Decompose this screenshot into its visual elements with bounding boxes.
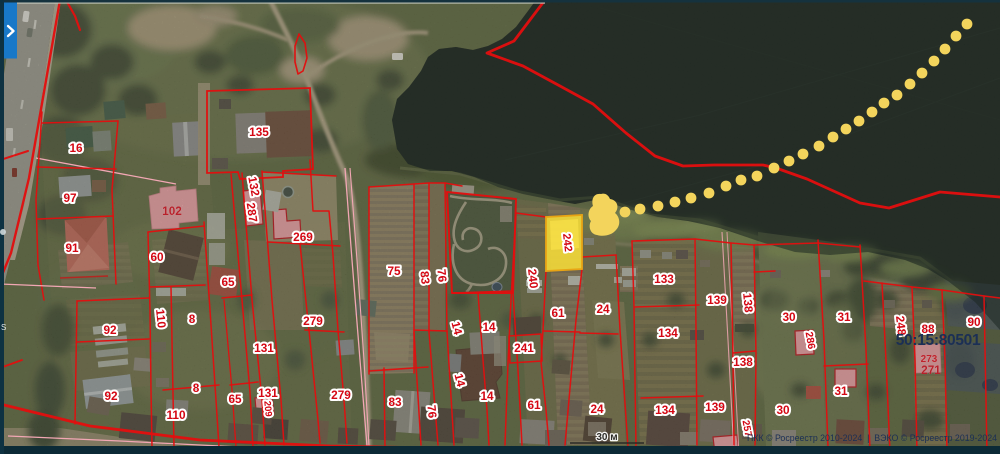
svg-text:76: 76 [424, 404, 439, 419]
svg-text:8: 8 [193, 381, 200, 395]
svg-text:279: 279 [303, 314, 323, 328]
svg-text:91: 91 [65, 241, 79, 255]
svg-text:131: 131 [254, 341, 274, 355]
svg-text:92: 92 [104, 389, 118, 403]
svg-text:60: 60 [150, 250, 164, 264]
svg-text:50:15:80501: 50:15:80501 [896, 332, 981, 349]
svg-text:139: 139 [707, 293, 727, 307]
svg-text:61: 61 [527, 398, 541, 412]
svg-text:271: 271 [921, 363, 941, 377]
svg-text:83: 83 [388, 395, 402, 409]
svg-text:24: 24 [596, 302, 610, 316]
svg-text:269: 269 [293, 230, 313, 244]
svg-text:65: 65 [221, 275, 235, 289]
svg-text:75: 75 [387, 264, 401, 278]
svg-text:279: 279 [331, 388, 351, 402]
svg-text:138: 138 [740, 292, 756, 313]
svg-text:90: 90 [967, 315, 981, 329]
svg-text:31: 31 [837, 310, 851, 324]
svg-text:209: 209 [261, 400, 273, 417]
svg-text:241: 241 [514, 341, 534, 355]
svg-text:287: 287 [244, 202, 261, 224]
svg-text:92: 92 [103, 323, 117, 337]
svg-text:14: 14 [482, 320, 496, 334]
svg-text:76: 76 [434, 268, 449, 283]
svg-text:30 м: 30 м [596, 432, 617, 443]
svg-text:ПКК © Росреестр 2010-2024 |: ПКК © Росреестр 2010-2024 | ВЭКО © Росре… [747, 433, 997, 443]
svg-text:134: 134 [658, 326, 678, 340]
svg-text:131: 131 [258, 386, 278, 400]
svg-text:30: 30 [776, 403, 790, 417]
svg-text:31: 31 [834, 384, 848, 398]
svg-text:S: S [1, 323, 6, 332]
svg-text:24: 24 [590, 402, 604, 416]
svg-text:110: 110 [166, 408, 185, 422]
svg-text:240: 240 [525, 268, 541, 289]
svg-text:16: 16 [69, 141, 83, 155]
svg-text:135: 135 [249, 125, 269, 139]
svg-text:102: 102 [162, 204, 182, 218]
svg-text:65: 65 [228, 392, 242, 406]
svg-text:134: 134 [655, 403, 675, 417]
svg-text:14: 14 [480, 389, 494, 403]
svg-text:242: 242 [560, 233, 574, 253]
svg-text:83: 83 [417, 270, 432, 285]
svg-text:133: 133 [654, 272, 674, 286]
svg-text:30: 30 [782, 310, 796, 324]
svg-text:8: 8 [189, 312, 196, 326]
svg-text:61: 61 [551, 306, 565, 320]
svg-text:97: 97 [63, 191, 77, 205]
svg-text:139: 139 [705, 400, 725, 414]
svg-text:110: 110 [153, 308, 169, 329]
svg-text:138: 138 [733, 355, 753, 369]
